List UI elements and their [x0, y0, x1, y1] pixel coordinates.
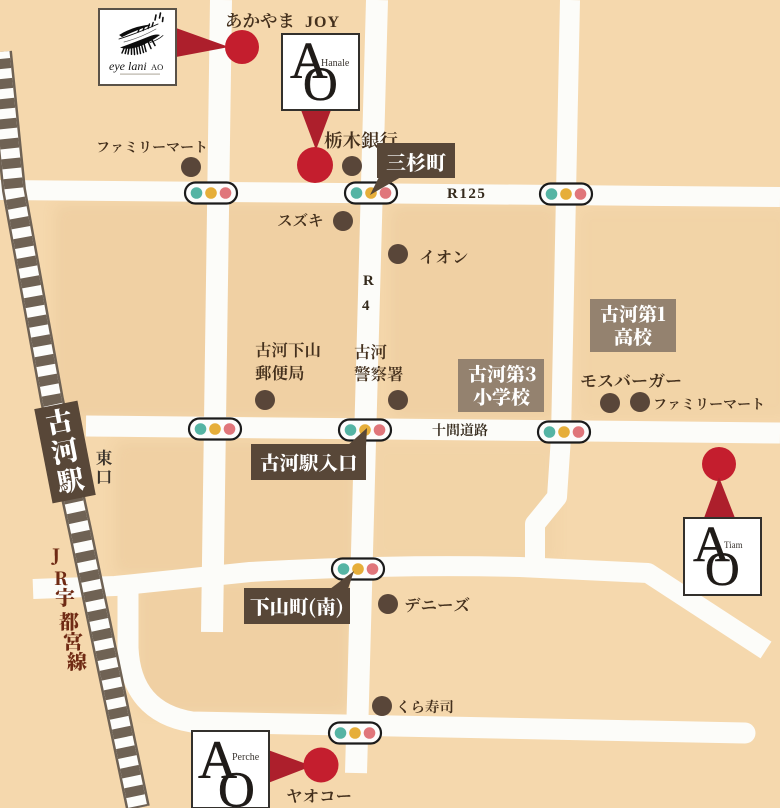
svg-text:Hanale: Hanale — [321, 58, 350, 69]
svg-text:R125: R125 — [447, 186, 486, 202]
svg-text:R: R — [363, 273, 374, 289]
svg-text:O: O — [705, 543, 740, 596]
svg-text:4: 4 — [362, 298, 370, 314]
svg-text:Tiam: Tiam — [724, 540, 743, 550]
svg-text:AO: AO — [151, 62, 163, 72]
svg-text:Perche: Perche — [232, 752, 260, 763]
svg-text:eye lani: eye lani — [109, 59, 147, 73]
svg-text:O: O — [218, 763, 255, 808]
svg-text:JOY: JOY — [305, 14, 340, 31]
